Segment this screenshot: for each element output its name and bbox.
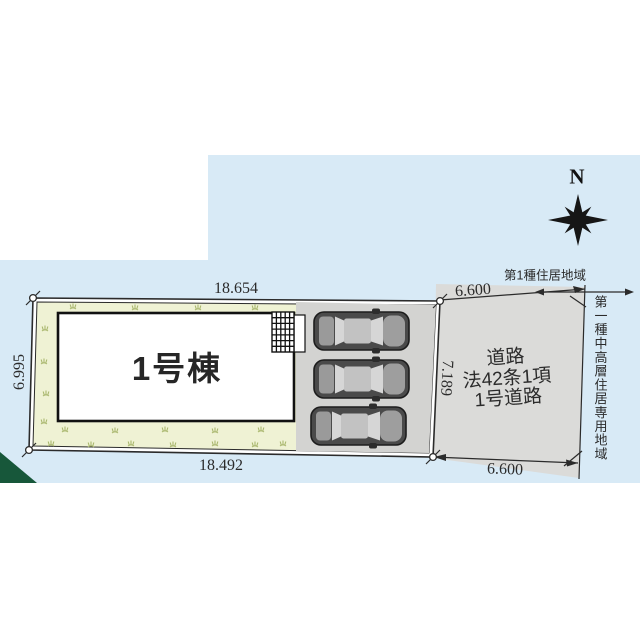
road-dim-bottom: 6.600 — [487, 460, 524, 479]
compass-north-label: N — [569, 165, 584, 190]
site-plan-canvas — [0, 0, 640, 640]
car-icon — [314, 357, 409, 402]
corner-marker — [437, 298, 444, 305]
car-icon — [311, 404, 406, 449]
building-label: 1号棟 — [132, 342, 222, 390]
corner-marker — [26, 447, 33, 454]
road-label: 道路 法42条1項 1号道路 — [461, 345, 554, 413]
site-plan-page: 18.654 18.492 6.995 7.189 6.600 6.600 1号… — [0, 0, 640, 640]
zoning-right-label: 第一種中高層住居専用地域 — [591, 295, 610, 461]
plot-dim-bottom: 18.492 — [199, 457, 243, 475]
car-icon — [314, 309, 409, 354]
corner-marker — [430, 454, 437, 461]
road-dim-top: 6.600 — [454, 281, 491, 301]
road-dim-side: 7.189 — [436, 360, 456, 397]
corner-marker — [30, 295, 37, 302]
entrance-grid — [272, 312, 305, 352]
plot-dim-top: 18.654 — [214, 280, 258, 298]
zoning-left-label: 第1種住居地域 — [504, 265, 586, 284]
plot-dim-left: 6.995 — [11, 354, 29, 390]
